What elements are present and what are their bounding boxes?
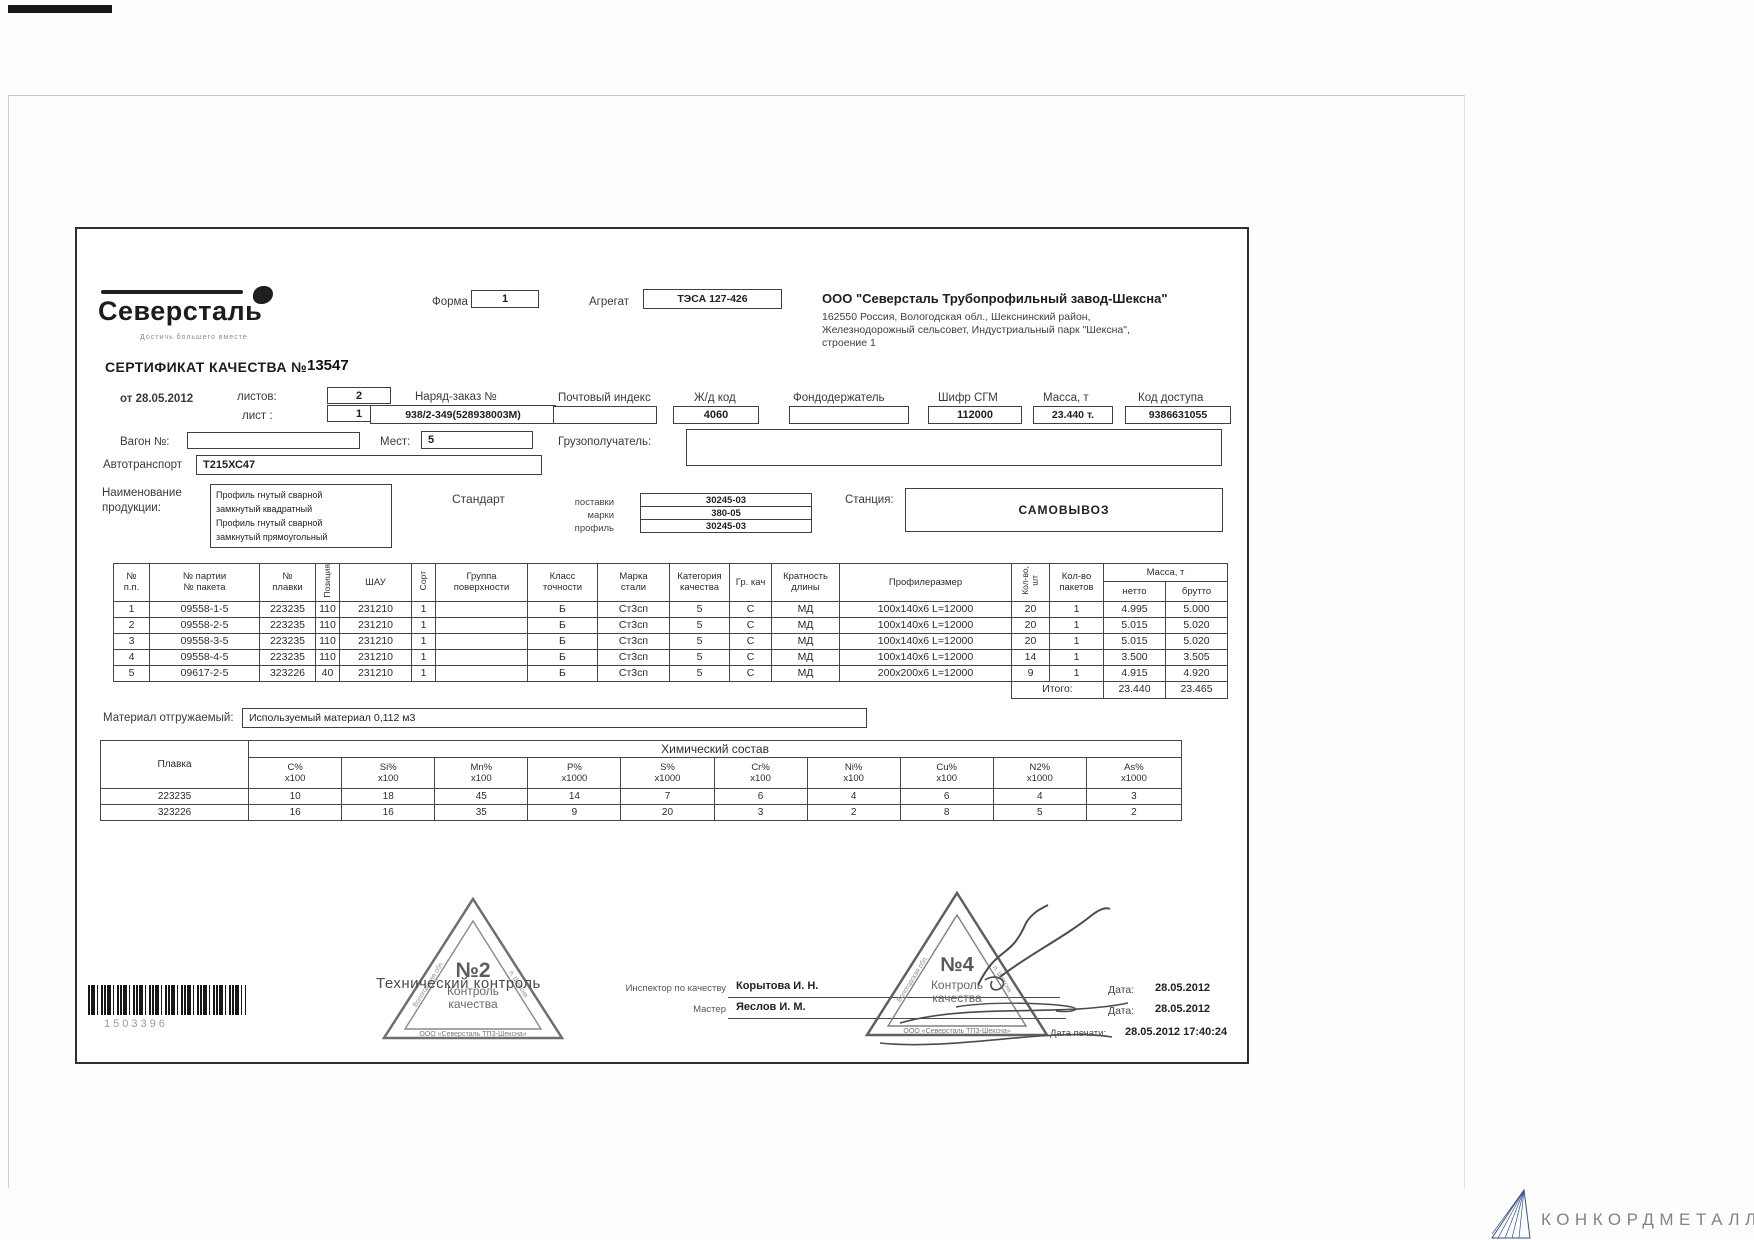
wagon-label: Вагон №: (120, 436, 169, 448)
chem-cell: 8 (900, 805, 993, 821)
table-cell: 5.015 (1104, 633, 1166, 649)
table-row: 109558-1-52232351102312101БСт3сп5СМД100х… (114, 601, 1228, 617)
table-cell: 09617-2-5 (150, 665, 260, 681)
chem-col: Si%х100 (342, 758, 435, 789)
order-label: Наряд-заказ № (415, 391, 497, 403)
table-cell: 110 (316, 617, 340, 633)
chem-cell: 9 (528, 805, 621, 821)
chem-cell: 35 (435, 805, 528, 821)
severstal-logo-tagline: Достичь большего вместе (140, 334, 248, 341)
table-cell: 1 (114, 601, 150, 617)
table-cell: 223235 (260, 617, 316, 633)
totals-label: Итого: (1012, 681, 1104, 698)
table-cell: 4.995 (1104, 601, 1166, 617)
totals-gross: 23.465 (1166, 681, 1228, 698)
company-name: ООО "Северсталь Трубопрофильный завод-Ше… (822, 291, 1242, 306)
product-line2: замкнутый квадратный (216, 502, 312, 516)
scanned-certificate-page: Северсталь Достичь большего вместе Форма… (0, 0, 1754, 1240)
main-table-header-row: № п.п. № партии № пакета № плавки Позици… (114, 564, 1228, 582)
chem-cell: 6 (714, 789, 807, 805)
chem-cell: 2 (807, 805, 900, 821)
certificate-date: от 28.05.2012 (120, 393, 193, 405)
date2-label: Дата: (1108, 1005, 1134, 1017)
col-batch: № партии № пакета (150, 564, 260, 602)
table-cell: 5.000 (1166, 601, 1228, 617)
table-cell: МД (772, 665, 840, 681)
product-line4: замкнутый прямоугольный (216, 530, 327, 544)
severstal-logo-dash (101, 290, 243, 294)
chemistry-subheader-row: С%х100 Si%х100 Mn%х100 Р%х1000 S%х1000 C… (101, 758, 1182, 789)
table-row: 409558-4-52232351102312101БСт3сп5СМД100х… (114, 649, 1228, 665)
forma-value-box: 1 (471, 290, 539, 308)
chemistry-title-row: Плавка Химический состав (101, 741, 1182, 758)
svg-text:Контроль: Контроль (931, 978, 983, 992)
table-cell: 110 (316, 649, 340, 665)
gost-box-profil: 30245-03 (640, 519, 812, 533)
master-label: Мастер (600, 1004, 726, 1015)
chem-cell: 3 (714, 805, 807, 821)
chem-col: Р%х1000 (528, 758, 621, 789)
table-cell: Б (528, 633, 598, 649)
chem-col: Mn%х100 (435, 758, 528, 789)
table-cell (436, 665, 528, 681)
dateprint-label: Дата печати: (1050, 1028, 1106, 1039)
product-label-1: Наименование (102, 487, 182, 499)
chem-cell: 4 (993, 789, 1086, 805)
main-table: № п.п. № партии № пакета № плавки Позици… (113, 563, 1228, 699)
material-box: Используемый материал 0,112 м3 (242, 708, 867, 728)
forma-label: Форма (432, 296, 468, 308)
standard-label: Стандарт (452, 492, 505, 506)
quality-stamp-4: №4 Контроль качества ООО «Северсталь ТПЗ… (860, 885, 1150, 1055)
access-code-box: 9386631055 (1125, 406, 1231, 424)
table-cell: Ст3сп (598, 617, 670, 633)
product-label-2: продукции: (102, 502, 161, 514)
station-box: САМОВЫВОЗ (905, 488, 1223, 532)
severstal-logo-text: Северсталь (98, 296, 262, 327)
table-cell: 09558-1-5 (150, 601, 260, 617)
chem-cell: 7 (621, 789, 714, 805)
barcode (88, 985, 246, 1015)
table-cell: 223235 (260, 649, 316, 665)
mass-label: Масса, т (1043, 392, 1089, 404)
company-address-line2: Железнодорожный сельсовет, Индустриальны… (822, 324, 1242, 337)
table-cell: 1 (1050, 665, 1104, 681)
chem-melt-header: Плавка (101, 741, 249, 789)
listov-label: листов: (237, 391, 277, 403)
rail-code-label: Ж/д код (694, 392, 736, 404)
table-cell: 5.020 (1166, 617, 1228, 633)
product-box: Профиль гнутый сварной замкнутый квадрат… (210, 484, 392, 548)
table-cell: 231210 (340, 665, 412, 681)
cipher-box: 112000 (928, 406, 1022, 424)
table-cell: 5 (670, 633, 730, 649)
mest-box: 5 (421, 431, 533, 449)
wagon-box (187, 432, 360, 449)
table-cell: 323226 (260, 665, 316, 681)
table-cell: 09558-4-5 (150, 649, 260, 665)
col-category: Категория качества (670, 564, 730, 602)
chem-col: Cr%х100 (714, 758, 807, 789)
gost-box-marki: 380-05 (640, 506, 812, 520)
table-cell: Ст3сп (598, 665, 670, 681)
col-gr: Гр. кач (730, 564, 772, 602)
chemistry-title: Химический состав (249, 741, 1182, 758)
col-profile: Профилеразмер (840, 564, 1012, 602)
chemistry-table: Плавка Химический состав С%х100 Si%х100 … (100, 740, 1182, 821)
chem-col: S%х1000 (621, 758, 714, 789)
table-cell: 4.920 (1166, 665, 1228, 681)
station-label: Станция: (845, 494, 894, 506)
col-gross: брутто (1166, 581, 1228, 601)
chem-cell: 16 (249, 805, 342, 821)
chem-melt: 323226 (101, 805, 249, 821)
chem-cell: 2 (1086, 805, 1181, 821)
svg-text:ООО «Северсталь ТПЗ-Шексна»: ООО «Северсталь ТПЗ-Шексна» (903, 1028, 1010, 1035)
table-cell: 1 (412, 665, 436, 681)
table-cell: МД (772, 649, 840, 665)
cipher-label: Шифр СГМ (938, 392, 998, 404)
table-cell: С (730, 601, 772, 617)
postal-box (553, 406, 657, 424)
company-address: 162550 Россия, Вологодская обл., Шекснин… (822, 311, 1242, 350)
table-cell: Ст3сп (598, 649, 670, 665)
table-cell: 1 (412, 649, 436, 665)
chem-cell: 20 (621, 805, 714, 821)
table-cell (436, 633, 528, 649)
table-cell: 223235 (260, 633, 316, 649)
col-packs: Кол-во пакетов (1050, 564, 1104, 602)
table-cell: МД (772, 617, 840, 633)
table-cell: 110 (316, 601, 340, 617)
col-mass: Масса, т (1104, 564, 1228, 582)
table-cell: 1 (1050, 633, 1104, 649)
table-cell: Б (528, 601, 598, 617)
tech-control-text: Технический контроль (376, 975, 541, 992)
chem-col: As%х1000 (1086, 758, 1181, 789)
chemistry-row: 323226 16 16 35 9 20 3 2 8 5 2 (101, 805, 1182, 821)
chem-col: Ni%х100 (807, 758, 900, 789)
table-cell: С (730, 649, 772, 665)
rail-code-box: 4060 (673, 406, 759, 424)
table-cell (436, 601, 528, 617)
chem-col: N2%х1000 (993, 758, 1086, 789)
table-cell: 5 (670, 665, 730, 681)
table-cell: 231210 (340, 601, 412, 617)
barcode-number: 1503396 (104, 1018, 168, 1030)
date1-value: 28.05.2012 (1155, 982, 1210, 994)
totals-spacer (114, 681, 1012, 698)
table-cell: 100х140х6 L=12000 (840, 601, 1012, 617)
chem-cell: 10 (249, 789, 342, 805)
dateprint-value: 28.05.2012 17:40:24 (1125, 1026, 1227, 1038)
chem-cell: 4 (807, 789, 900, 805)
table-cell: 100х140х6 L=12000 (840, 649, 1012, 665)
mest-label: Мест: (380, 436, 410, 448)
table-cell: 100х140х6 L=12000 (840, 617, 1012, 633)
chem-cell: 16 (342, 805, 435, 821)
list-label: лист : (242, 410, 273, 422)
chemistry-row: 223235 10 18 45 14 7 6 4 6 4 3 (101, 789, 1182, 805)
table-cell: 5 (114, 665, 150, 681)
table-cell: 5 (670, 601, 730, 617)
agregat-label: Агрегат (589, 296, 629, 308)
inspector-label: Инспектор по качеству (600, 983, 726, 994)
consignee-box (686, 429, 1222, 466)
table-cell: 9 (1012, 665, 1050, 681)
consignee-label: Грузополучатель: (558, 436, 651, 448)
col-length: Кратность длины (772, 564, 840, 602)
table-cell: С (730, 665, 772, 681)
table-cell: 200х200х6 L=12000 (840, 665, 1012, 681)
table-cell: 1 (412, 601, 436, 617)
table-cell: 20 (1012, 617, 1050, 633)
table-cell: 3.505 (1166, 649, 1228, 665)
table-cell: 100х140х6 L=12000 (840, 633, 1012, 649)
col-net: нетто (1104, 581, 1166, 601)
table-cell: 4.915 (1104, 665, 1166, 681)
table-cell: 1 (412, 617, 436, 633)
totals-net: 23.440 (1104, 681, 1166, 698)
certificate-title: СЕРТИФИКАТ КАЧЕСТВА № (105, 359, 307, 375)
chem-melt: 223235 (101, 789, 249, 805)
svg-text:ООО «Северсталь ТПЗ-Шексна»: ООО «Северсталь ТПЗ-Шексна» (419, 1031, 526, 1038)
gost-label-profil: профиль (552, 523, 614, 534)
table-cell: МД (772, 633, 840, 649)
table-row: 309558-3-52232351102312101БСт3сп5СМД100х… (114, 633, 1228, 649)
auto-box: Т215ХС47 (196, 455, 542, 475)
table-cell: 223235 (260, 601, 316, 617)
table-cell: МД (772, 601, 840, 617)
svg-text:№4: №4 (940, 954, 974, 976)
chem-cell: 6 (900, 789, 993, 805)
table-cell: 1 (1050, 649, 1104, 665)
table-cell: 20 (1012, 633, 1050, 649)
chem-cell: 18 (342, 789, 435, 805)
table-cell: Б (528, 617, 598, 633)
postal-label: Почтовый индекс (558, 392, 651, 404)
material-label: Материал отгружаемый: (103, 712, 234, 724)
table-cell: 20 (1012, 601, 1050, 617)
table-cell: 5 (670, 649, 730, 665)
table-cell: 1 (412, 633, 436, 649)
table-cell: 110 (316, 633, 340, 649)
konkord-brand-text: КОНКОРДМЕТАЛЛ (1541, 1210, 1754, 1230)
table-cell (436, 649, 528, 665)
chem-cell: 45 (435, 789, 528, 805)
scan-artifact-dash (8, 5, 112, 13)
quality-stamp-2: №2 Контроль качества ООО «Северсталь ТПЗ… (378, 893, 568, 1043)
table-cell: 231210 (340, 617, 412, 633)
gost-box-postavki: 30245-03 (640, 493, 812, 507)
table-cell: 1 (1050, 617, 1104, 633)
col-accuracy: Класс точности (528, 564, 598, 602)
fond-label: Фондодержатель (793, 392, 885, 404)
auto-label: Автотранспорт (103, 459, 182, 471)
svg-text:качества: качества (448, 997, 498, 1011)
totals-row: Итого: 23.440 23.465 (114, 681, 1228, 698)
table-cell: С (730, 633, 772, 649)
col-num: № п.п. (114, 564, 150, 602)
table-cell: 40 (316, 665, 340, 681)
svg-text:качества: качества (932, 991, 982, 1005)
col-position: Позиция (316, 564, 340, 602)
table-cell: Б (528, 665, 598, 681)
table-row: 209558-2-52232351102312101БСт3сп5СМД100х… (114, 617, 1228, 633)
table-cell: 4 (114, 649, 150, 665)
table-cell: 09558-3-5 (150, 633, 260, 649)
chem-col: С%х100 (249, 758, 342, 789)
fond-box (789, 406, 909, 424)
product-line1: Профиль гнутый сварной (216, 488, 322, 502)
table-cell: 3.500 (1104, 649, 1166, 665)
chem-cell: 14 (528, 789, 621, 805)
chem-col: Cu%х100 (900, 758, 993, 789)
table-cell: 2 (114, 617, 150, 633)
gost-label-postavki: поставки (552, 497, 614, 508)
table-cell (436, 617, 528, 633)
table-cell: 5.020 (1166, 633, 1228, 649)
col-sort: Сорт (412, 564, 436, 602)
table-cell: 231210 (340, 649, 412, 665)
table-cell: 231210 (340, 633, 412, 649)
table-cell: С (730, 617, 772, 633)
table-cell: Ст3сп (598, 633, 670, 649)
order-box: 938/2-349(528938003М) (370, 405, 556, 424)
chem-cell: 3 (1086, 789, 1181, 805)
table-cell: 5 (670, 617, 730, 633)
table-cell: Б (528, 649, 598, 665)
access-code-label: Код доступа (1138, 392, 1203, 404)
chem-cell: 5 (993, 805, 1086, 821)
col-qty: Кол-во, шт (1012, 564, 1050, 602)
table-cell: 3 (114, 633, 150, 649)
col-steel: Марка стали (598, 564, 670, 602)
table-row: 509617-2-5323226402312101БСт3сп5СМД200х2… (114, 665, 1228, 681)
certificate-number: 13547 (307, 357, 349, 374)
table-cell: Ст3сп (598, 601, 670, 617)
date2-value: 28.05.2012 (1155, 1003, 1210, 1015)
table-cell: 5.015 (1104, 617, 1166, 633)
konkord-sail-icon (1488, 1188, 1534, 1240)
col-melt: № плавки (260, 564, 316, 602)
listov-box: 2 (327, 387, 391, 404)
date1-label: Дата: (1108, 984, 1134, 996)
company-address-line1: 162550 Россия, Вологодская обл., Шекснин… (822, 311, 1242, 324)
company-address-line3: строение 1 (822, 337, 1242, 350)
mass-box: 23.440 т. (1033, 406, 1113, 424)
gost-label-marki: марки (552, 510, 614, 521)
product-line3: Профиль гнутый сварной (216, 516, 322, 530)
col-shau: ШАУ (340, 564, 412, 602)
table-cell: 09558-2-5 (150, 617, 260, 633)
col-surface: Группа поверхности (436, 564, 528, 602)
table-cell: 14 (1012, 649, 1050, 665)
agregat-value-box: ТЭСА 127-426 (643, 289, 782, 309)
table-cell: 1 (1050, 601, 1104, 617)
